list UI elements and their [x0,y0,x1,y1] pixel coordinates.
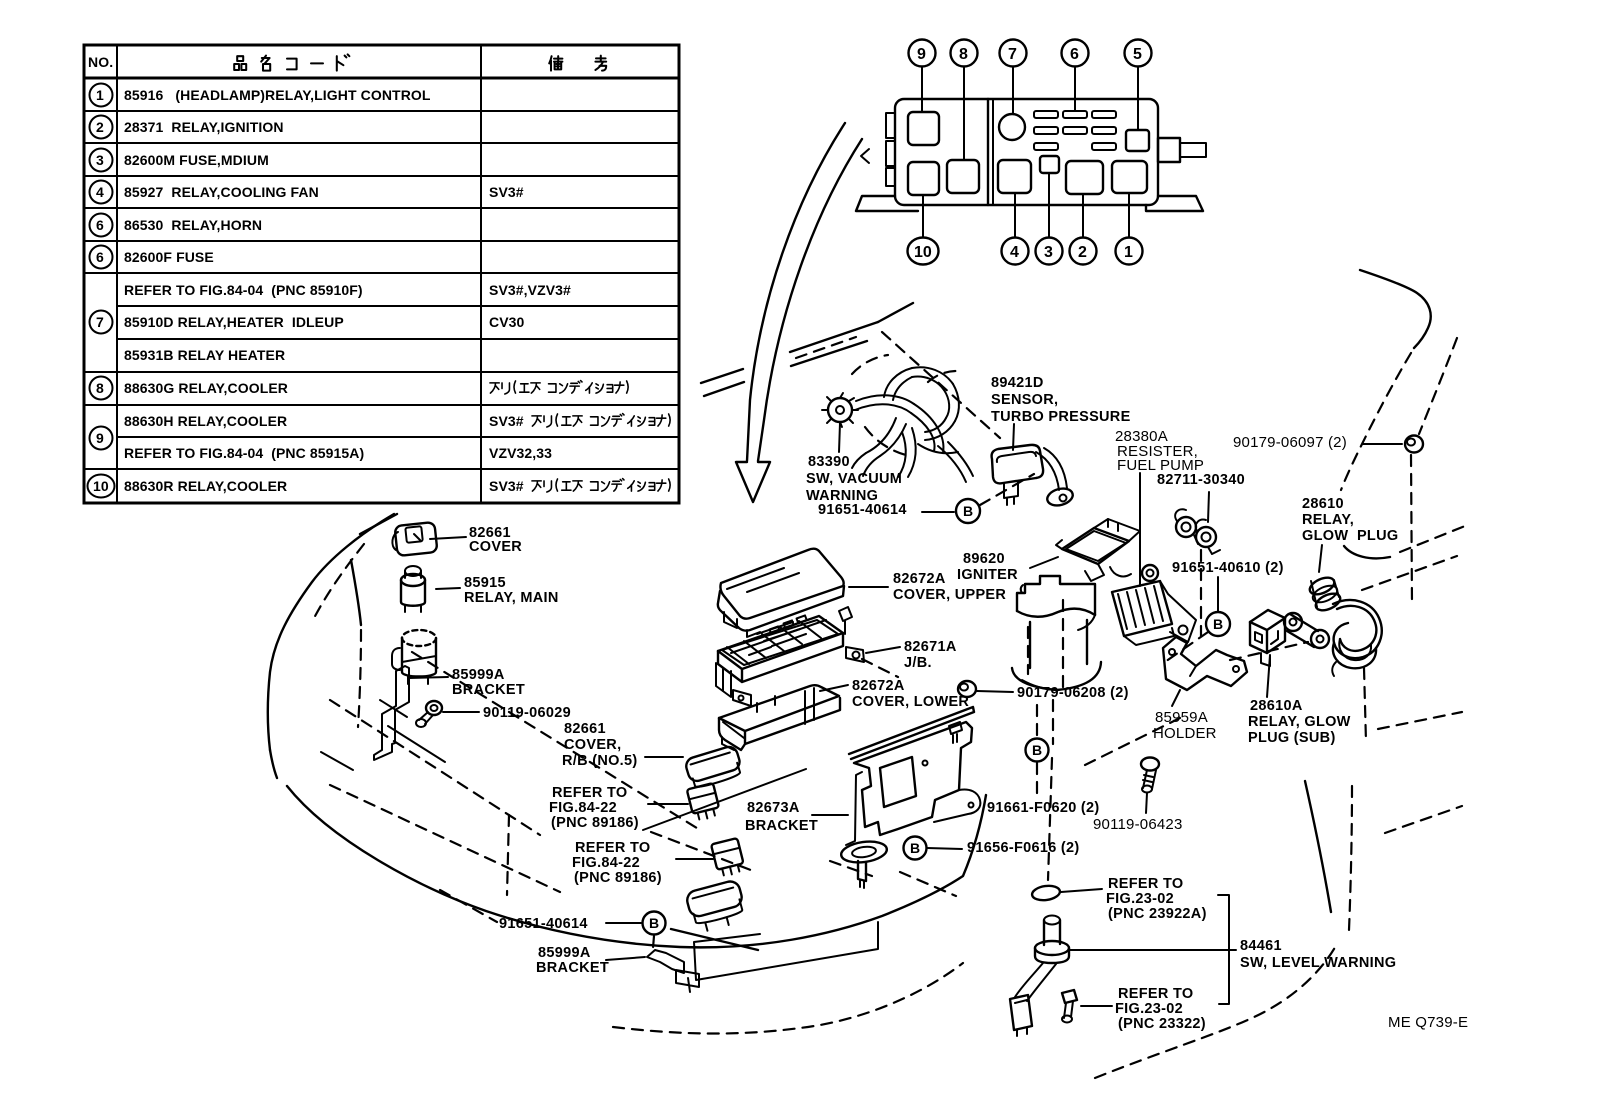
svg-text:8: 8 [96,380,104,396]
svg-text:REFER TO: REFER TO [1108,876,1183,892]
svg-text:91651-40614: 91651-40614 [818,502,907,518]
svg-text:9: 9 [96,430,104,446]
svg-text:B: B [1032,742,1042,758]
svg-text:FIG.84-22: FIG.84-22 [549,800,617,816]
svg-text:ME Q739-E: ME Q739-E [1388,1014,1468,1031]
svg-text:28610: 28610 [1302,496,1344,512]
svg-text:7: 7 [1008,46,1017,63]
svg-text:88630R RELAY,COOLER: 88630R RELAY,COOLER [124,478,287,494]
svg-text:(PNC 23922A): (PNC 23922A) [1108,906,1207,922]
svg-text:85999A: 85999A [452,667,505,683]
svg-text:85910D RELAY,HEATER IDLEUP: 85910D RELAY,HEATER IDLEUP [124,314,344,330]
svg-text:91651-40614: 91651-40614 [499,916,588,932]
svg-text:89421D: 89421D [991,375,1044,391]
svg-text:GLOW PLUG: GLOW PLUG [1302,528,1398,544]
svg-text:1: 1 [1124,244,1133,261]
svg-text:B: B [910,840,920,856]
svg-text:PLUG (SUB): PLUG (SUB) [1248,730,1336,746]
svg-text:91661-F0620 (2): 91661-F0620 (2) [987,800,1100,816]
svg-text:82661: 82661 [564,721,606,737]
svg-text:REFER TO FIG.84-04 (PNC 85915: REFER TO FIG.84-04 (PNC 85915A) [124,445,364,461]
svg-text:NO.: NO. [88,54,113,70]
svg-text:88630G RELAY,COOLER: 88630G RELAY,COOLER [124,380,288,396]
svg-text:4: 4 [1010,244,1019,261]
svg-text:SV3#: SV3# [489,184,524,200]
svg-text:89620: 89620 [963,551,1005,567]
svg-text:IGNITER: IGNITER [957,567,1018,583]
svg-text:28610A: 28610A [1250,698,1303,714]
svg-text:6: 6 [1070,46,1079,63]
svg-text:SV3#: SV3# [489,478,524,494]
svg-text:REFER TO: REFER TO [552,785,627,801]
svg-text:BRACKET: BRACKET [536,960,609,976]
svg-text:SV3#,VZV3#: SV3#,VZV3# [489,282,571,298]
svg-text:82672A: 82672A [893,571,946,587]
svg-text:7: 7 [96,314,104,330]
svg-text:(PNC 89186): (PNC 89186) [551,815,639,831]
svg-text:28371 RELAY,IGNITION: 28371 RELAY,IGNITION [124,119,284,135]
svg-text:COVER: COVER [469,539,522,555]
svg-text:2: 2 [1078,244,1087,261]
svg-text:COVER, LOWER: COVER, LOWER [852,694,969,710]
svg-text:B: B [963,503,973,519]
svg-text:90179-06097 (2): 90179-06097 (2) [1233,434,1347,451]
svg-text:RELAY, MAIN: RELAY, MAIN [464,590,559,606]
svg-text:85931B RELAY HEATER: 85931B RELAY HEATER [124,347,285,363]
svg-text:COVER,: COVER, [564,737,621,753]
svg-text:8: 8 [959,46,968,63]
svg-text:4: 4 [96,184,104,200]
svg-text:SW, LEVEL WARNING: SW, LEVEL WARNING [1240,955,1396,971]
svg-text:85927 RELAY,COOLING FAN: 85927 RELAY,COOLING FAN [124,184,319,200]
svg-text:BRACKET: BRACKET [745,818,818,834]
svg-text:SV3#: SV3# [489,413,524,429]
svg-text:10: 10 [93,478,109,494]
svg-text:1: 1 [96,87,104,103]
svg-text:RELAY, GLOW: RELAY, GLOW [1248,714,1351,730]
svg-text:91651-40610 (2): 91651-40610 (2) [1172,560,1284,576]
svg-text:88630H RELAY,COOLER: 88630H RELAY,COOLER [124,413,287,429]
svg-text:CV30: CV30 [489,314,525,330]
svg-text:FIG.23-02: FIG.23-02 [1106,891,1174,907]
svg-text:FIG.84-22: FIG.84-22 [572,855,640,871]
svg-text:R/B (NO.5): R/B (NO.5) [562,753,638,769]
svg-text:J/B.: J/B. [904,655,932,671]
svg-text:85959A: 85959A [1155,709,1208,726]
svg-text:82672A: 82672A [852,678,905,694]
svg-text:90119-06029: 90119-06029 [483,705,571,721]
svg-text:85999A: 85999A [538,945,591,961]
svg-text:10: 10 [914,244,932,261]
svg-text:(PNC 23322): (PNC 23322) [1118,1016,1206,1032]
svg-text:6: 6 [96,217,104,233]
svg-text:REFER TO FIG.84-04 (PNC 85910: REFER TO FIG.84-04 (PNC 85910F) [124,282,363,298]
svg-text:91656-F0616 (2): 91656-F0616 (2) [967,840,1080,856]
svg-text:9: 9 [917,46,926,63]
svg-text:86530 RELAY,HORN: 86530 RELAY,HORN [124,217,262,233]
svg-text:3: 3 [1044,244,1053,261]
svg-text:85915: 85915 [464,575,506,591]
svg-text:B: B [649,915,659,931]
svg-text:(PNC 89186): (PNC 89186) [574,870,662,886]
svg-text:82600F FUSE: 82600F FUSE [124,249,214,265]
svg-text:84461: 84461 [1240,938,1282,954]
svg-text:90119-06423: 90119-06423 [1093,816,1183,833]
svg-text:6: 6 [96,249,104,265]
svg-text:82673A: 82673A [747,800,800,816]
svg-text:82711-30340: 82711-30340 [1157,472,1245,488]
svg-text:RELAY,: RELAY, [1302,512,1354,528]
svg-text:5: 5 [1133,46,1142,63]
svg-text:VZV32,33: VZV32,33 [489,445,552,461]
svg-text:85916 (HEADLAMP)RELAY,LIGHT: 85916 (HEADLAMP)RELAY,LIGHT CONTROL [124,87,431,103]
svg-text:TURBO PRESSURE: TURBO PRESSURE [991,409,1131,425]
svg-text:REFER TO: REFER TO [1118,986,1193,1002]
svg-text:REFER TO: REFER TO [575,840,650,856]
svg-text:3: 3 [96,152,104,168]
svg-text:B: B [1213,616,1223,632]
svg-text:82600M FUSE,MDIUM: 82600M FUSE,MDIUM [124,152,269,168]
svg-text:82671A: 82671A [904,639,957,655]
svg-text:SW, VACUUM: SW, VACUUM [806,471,902,487]
svg-text:83390: 83390 [808,454,850,470]
svg-text:SENSOR,: SENSOR, [991,392,1058,408]
svg-text:2: 2 [96,119,104,135]
svg-text:COVER, UPPER: COVER, UPPER [893,587,1006,603]
svg-text:FIG.23-02: FIG.23-02 [1115,1001,1183,1017]
svg-text:BRACKET: BRACKET [452,682,525,698]
